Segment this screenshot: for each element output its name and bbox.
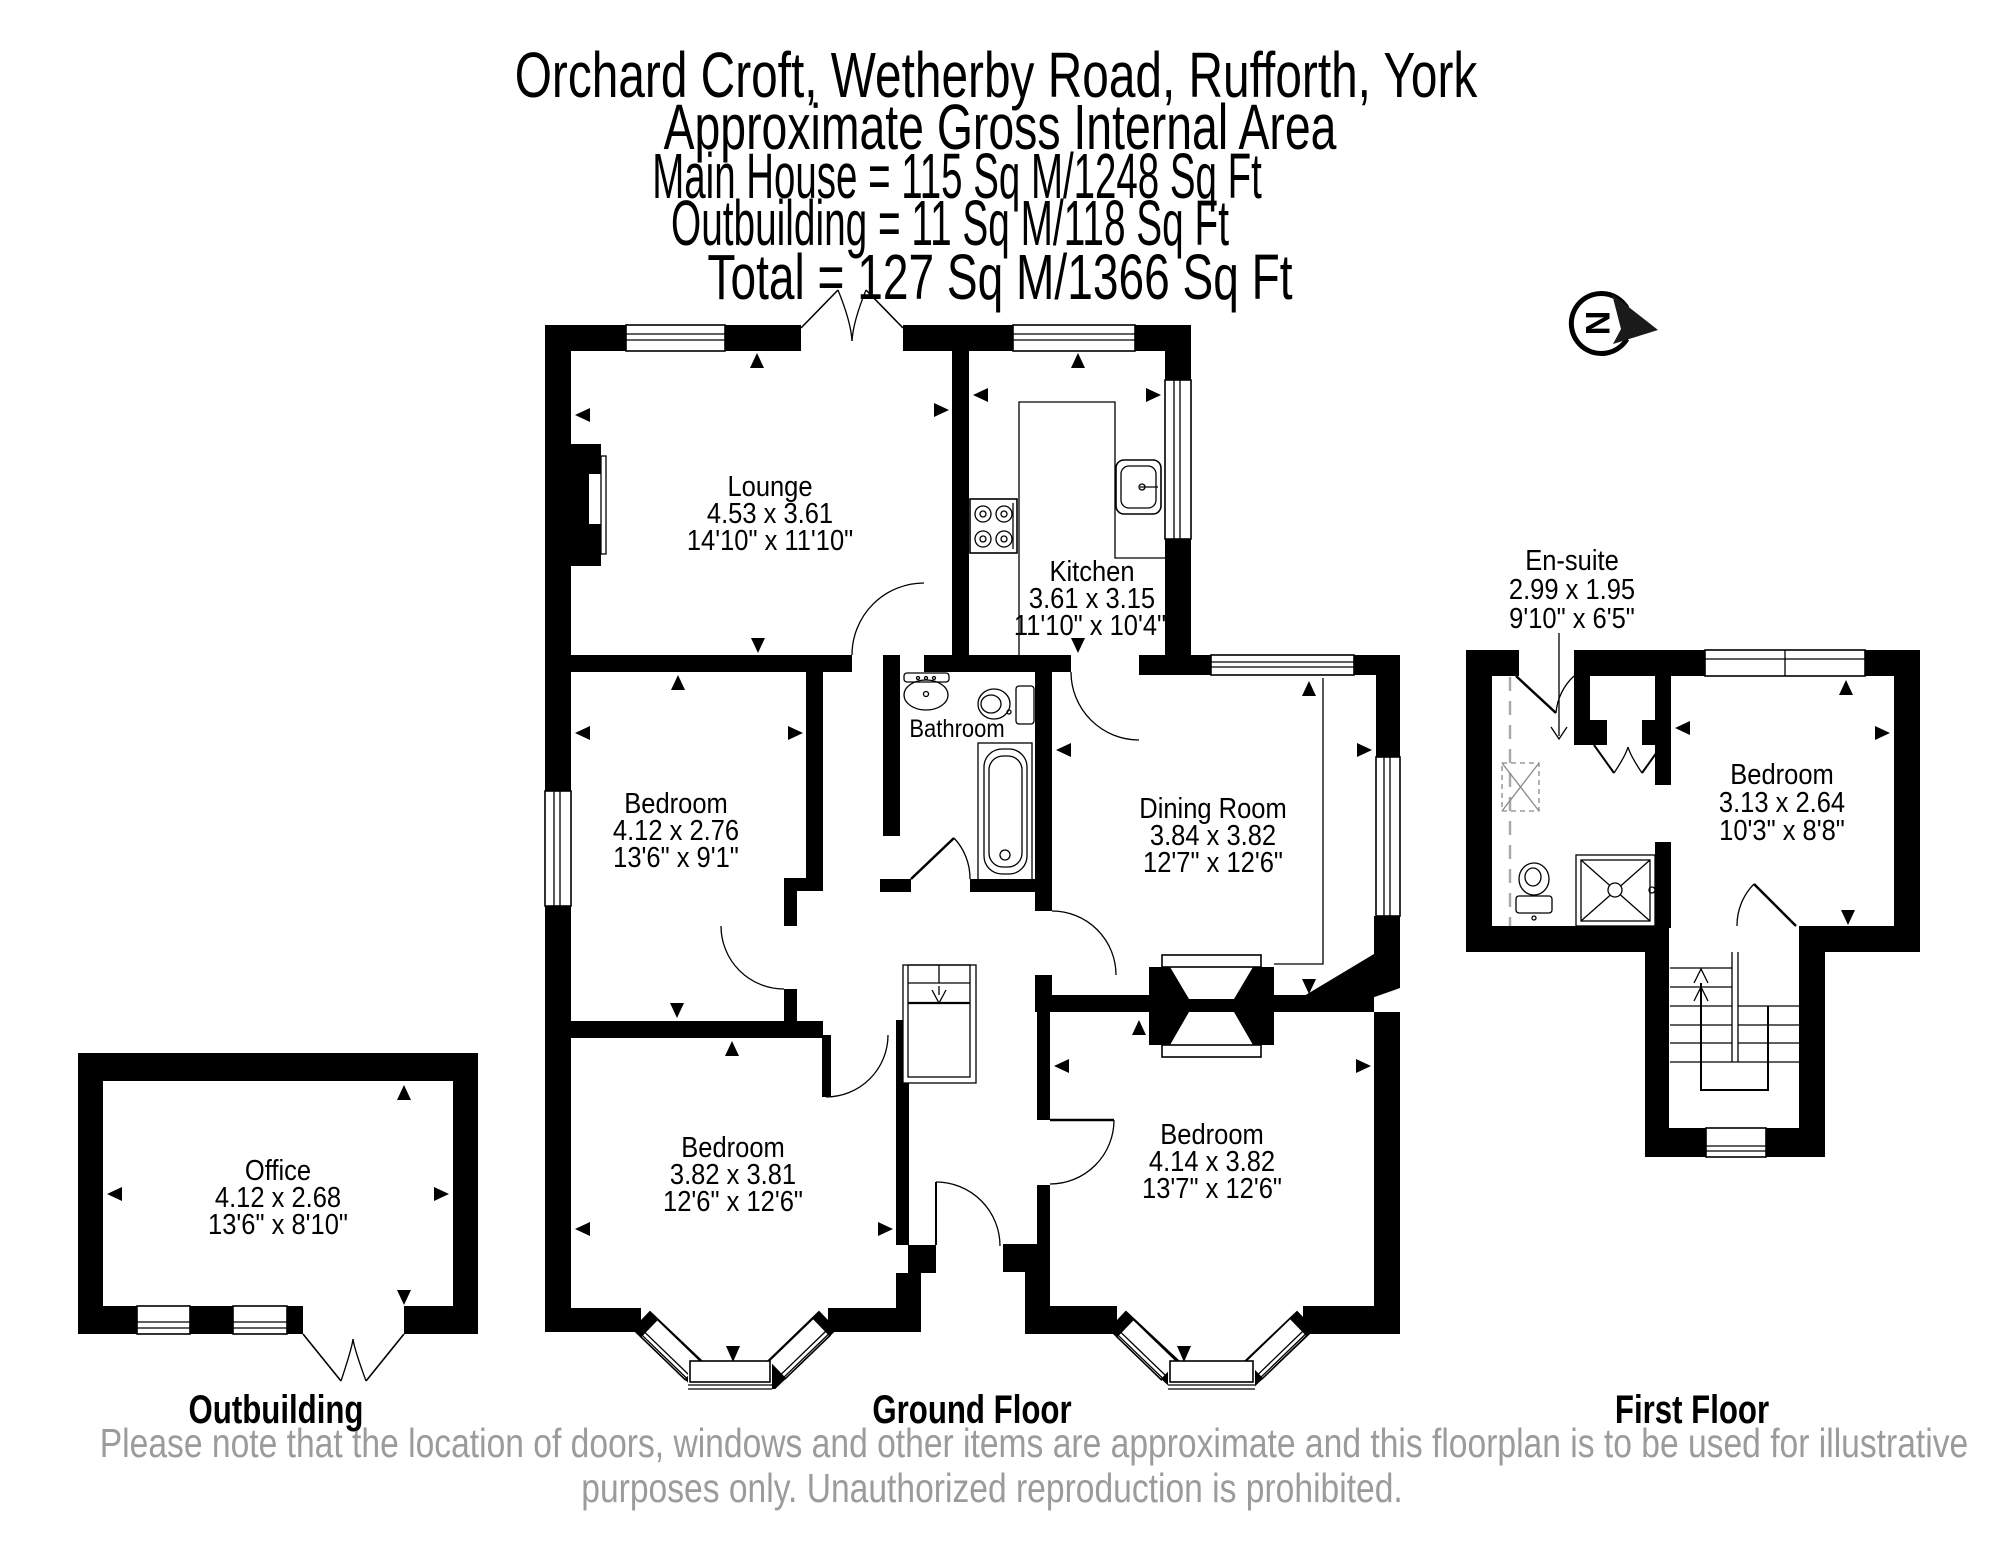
svg-text:Total = 127 Sq M/1366 Sq Ft: Total = 127 Sq M/1366 Sq Ft xyxy=(707,242,1293,313)
svg-text:2.99 x 1.95: 2.99 x 1.95 xyxy=(1509,572,1635,605)
svg-text:N: N xyxy=(1578,311,1616,336)
svg-text:14'10" x 11'10": 14'10" x 11'10" xyxy=(687,523,853,556)
svg-text:Bathroom: Bathroom xyxy=(909,715,1004,743)
svg-text:13'6" x 9'1": 13'6" x 9'1" xyxy=(613,840,739,873)
svg-text:10'3" x 8'8": 10'3" x 8'8" xyxy=(1719,813,1845,846)
svg-text:Please note that the location: Please note that the location of doors, … xyxy=(100,1420,1968,1466)
svg-text:12'7" x 12'6": 12'7" x 12'6" xyxy=(1143,845,1283,878)
svg-text:13'7" x 12'6": 13'7" x 12'6" xyxy=(1142,1171,1282,1204)
svg-text:11'10" x 10'4": 11'10" x 10'4" xyxy=(1014,608,1166,641)
svg-text:purposes only. Unauthorized re: purposes only. Unauthorized reproduction… xyxy=(581,1465,1403,1511)
svg-text:12'6" x 12'6": 12'6" x 12'6" xyxy=(663,1184,803,1217)
svg-text:9'10" x 6'5": 9'10" x 6'5" xyxy=(1509,601,1635,634)
svg-text:En-suite: En-suite xyxy=(1525,543,1619,576)
svg-text:13'6" x 8'10": 13'6" x 8'10" xyxy=(208,1207,348,1240)
